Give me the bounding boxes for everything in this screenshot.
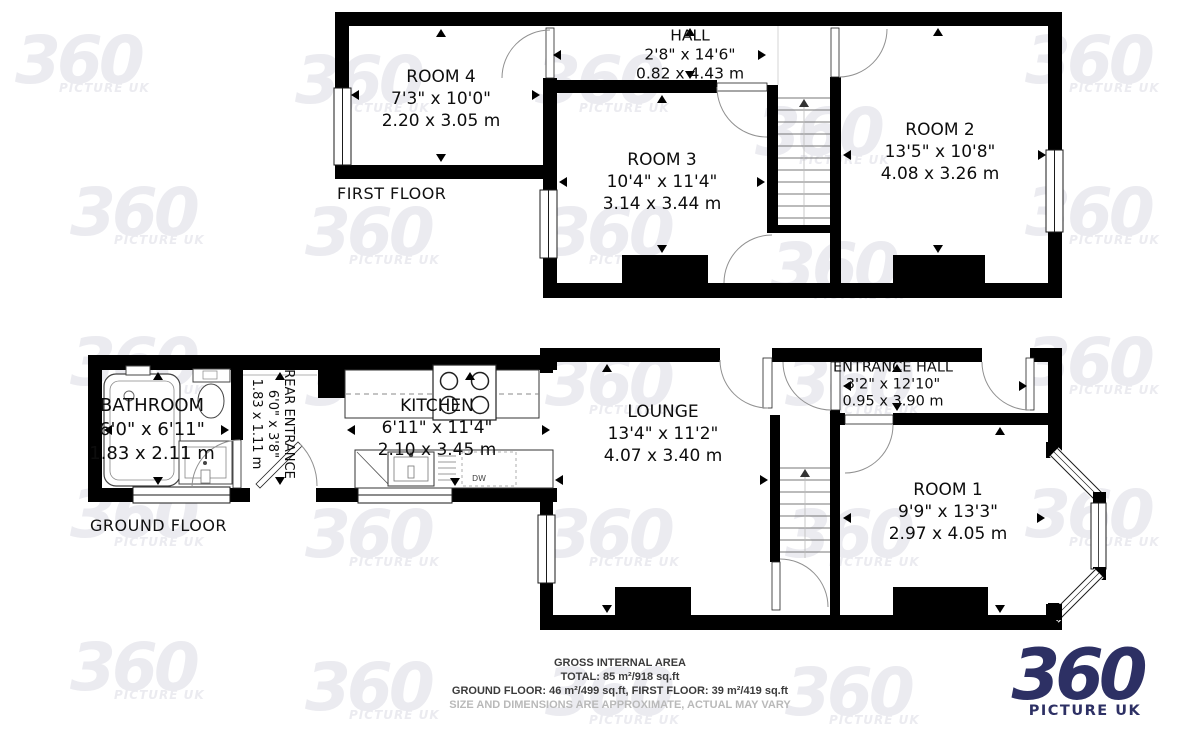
room-metric-dims: 2.10 x 3.45 m [378,439,497,461]
room-imperial-dims: 6'11" x 11'4" [378,417,497,439]
floorplan-page: 360PICTURE UK360PICTURE UK360PICTURE UK3… [0,0,1200,749]
room-imperial-dims: 2'8" x 14'6" [636,46,744,65]
room-name: ROOM 3 [603,149,722,171]
room-metric-dims: 4.07 x 3.40 m [604,445,723,467]
room-metric-dims: 0.82 x 4.43 m [636,65,744,84]
ground-floor-stairs [780,468,830,558]
room-imperial-dims: 9'9" x 13'3" [889,501,1008,523]
room-metric-dims: 1.83 x 2.11 m [89,442,215,466]
lounge-label: LOUNGE 13'4" x 11'2" 4.07 x 3.40 m [604,401,723,467]
room-imperial-dims: 3'2" x 12'10" [833,377,953,394]
logo-360-text: 360 [1002,640,1152,710]
bay-window [1046,442,1106,622]
kitchen-label: KITCHEN 6'11" x 11'4" 2.10 x 3.45 m [378,395,497,461]
room2-label: ROOM 2 13'5" x 10'8" 4.08 x 3.26 m [881,119,1000,185]
entrance-hall-label: ENTRANCE HALL 3'2" x 12'10" 0.95 x 3.90 … [833,360,953,411]
first-floor-stairs [778,26,830,225]
room-imperial-dims: 6'0" x 3'8" [264,369,280,479]
room-imperial-dims: 7'3" x 10'0" [382,88,501,110]
room-imperial-dims: 10'4" x 11'4" [603,171,722,193]
hall-label: HALL 2'8" x 14'6" 0.82 x 4.43 m [636,27,744,84]
total-area: TOTAL: 85 m²/918 sq.ft [449,670,790,684]
first-floor-label: FIRST FLOOR [337,184,446,203]
rear-entrance-label: REAR ENTRANCE 6'0" x 3'8" 1.83 x 1.11 m [248,369,296,479]
gross-internal-area-title: GROSS INTERNAL AREA [449,656,790,670]
room-name: ROOM 4 [382,66,501,88]
room-name: REAR ENTRANCE [280,369,296,479]
room-name: BATHROOM [89,394,215,418]
ground-floor-label: GROUND FLOOR [90,516,227,535]
dishwasher-label: DW [472,474,486,483]
chimney-breast [622,255,985,283]
disclaimer: SIZE AND DIMENSIONS ARE APPROXIMATE, ACT… [449,698,790,712]
logo-picture-uk-text: PICTURE UK [1018,704,1152,719]
per-floor-area: GROUND FLOOR: 46 m²/499 sq.ft, FIRST FLO… [449,684,790,698]
brand-logo: 360 PICTURE UK [1002,640,1152,719]
room1-label: ROOM 1 9'9" x 13'3" 2.97 x 4.05 m [889,479,1008,545]
room-imperial-dims: 6'0" x 6'11" [89,418,215,442]
bathroom-label: BATHROOM 6'0" x 6'11" 1.83 x 2.11 m [89,394,215,466]
room-imperial-dims: 13'5" x 10'8" [881,141,1000,163]
room-metric-dims: 1.83 x 1.11 m [248,369,264,479]
room4-label: ROOM 4 7'3" x 10'0" 2.20 x 3.05 m [382,66,501,132]
room-metric-dims: 2.97 x 4.05 m [889,523,1008,545]
room-imperial-dims: 13'4" x 11'2" [604,423,723,445]
chimney-breast [615,587,988,615]
room3-label: ROOM 3 10'4" x 11'4" 3.14 x 3.44 m [603,149,722,215]
footer-area-summary: GROSS INTERNAL AREA TOTAL: 85 m²/918 sq.… [449,656,790,712]
room-name: LOUNGE [604,401,723,423]
room-metric-dims: 3.14 x 3.44 m [603,193,722,215]
room-name: ROOM 1 [889,479,1008,501]
room-name: ROOM 2 [881,119,1000,141]
room-metric-dims: 2.20 x 3.05 m [382,110,501,132]
room-name: KITCHEN [378,395,497,417]
room-metric-dims: 0.95 x 3.90 m [833,394,953,411]
room-metric-dims: 4.08 x 3.26 m [881,163,1000,185]
room-name: HALL [636,27,744,46]
rear-door-opening [250,486,316,504]
room-name: ENTRANCE HALL [833,360,953,377]
